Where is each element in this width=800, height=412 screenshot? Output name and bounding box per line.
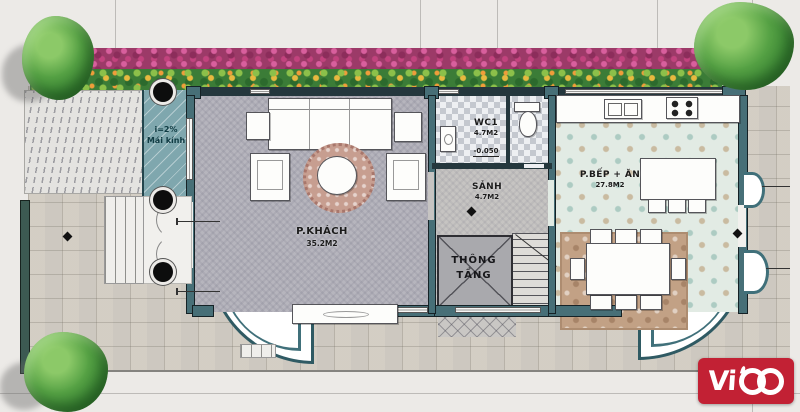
leader-line bbox=[762, 186, 790, 187]
kitchen-area: 27.8M2 bbox=[570, 181, 650, 190]
sofa-divider bbox=[349, 99, 350, 149]
dining-chair bbox=[570, 258, 585, 280]
driveway-ramp bbox=[24, 90, 144, 194]
dining-chair bbox=[671, 258, 686, 280]
kitchen-name: P.BẾP + ĂN bbox=[570, 170, 650, 181]
axis-gridline bbox=[497, 0, 498, 50]
hall-name: SẢNH bbox=[458, 182, 516, 193]
column bbox=[153, 82, 173, 102]
side-table bbox=[394, 112, 422, 142]
stove bbox=[666, 97, 698, 119]
dining-table bbox=[586, 243, 670, 295]
top-window-living bbox=[250, 89, 270, 94]
dining-chair bbox=[590, 229, 612, 244]
left-window bbox=[186, 118, 193, 180]
yard-edge-line bbox=[28, 370, 790, 372]
living-room-label: P.KHÁCH 35.2M2 bbox=[272, 226, 372, 248]
sofa-divider bbox=[309, 99, 310, 149]
glass-roof-name: Mái kính bbox=[140, 135, 192, 146]
column bbox=[153, 190, 173, 210]
tree bbox=[22, 16, 94, 100]
island-stool bbox=[668, 199, 686, 213]
bay-step bbox=[240, 344, 276, 358]
axis-gridline bbox=[115, 0, 116, 50]
kitchen-counter bbox=[556, 95, 740, 123]
toilet-bowl bbox=[519, 111, 537, 137]
dining-chair bbox=[590, 295, 612, 310]
side-table bbox=[246, 112, 270, 140]
living-hall-opening bbox=[428, 172, 434, 220]
living-room-area: 35.2M2 bbox=[272, 239, 372, 248]
sink-basin bbox=[444, 134, 453, 145]
flower-bed-top bbox=[30, 48, 722, 71]
void-label-line2: TẦNG bbox=[437, 268, 511, 283]
top-window-kitchen bbox=[565, 89, 723, 94]
axis-gridline bbox=[420, 0, 421, 50]
axis-gridline bbox=[657, 0, 658, 50]
kitchen-island bbox=[640, 158, 716, 200]
tree bbox=[24, 332, 108, 412]
logo-text: Vi bbox=[707, 366, 737, 397]
kitchen-label: P.BẾP + ĂN 27.8M2 bbox=[570, 170, 650, 190]
bottom-wall-segment bbox=[192, 305, 214, 317]
kitchen-sink bbox=[604, 99, 642, 119]
dimension-tick bbox=[176, 218, 178, 225]
leader-line bbox=[766, 268, 790, 269]
wc-level: -0.050 bbox=[473, 147, 498, 157]
armchair-seat bbox=[257, 160, 283, 190]
left-boundary-wall bbox=[20, 200, 30, 374]
island-stool bbox=[648, 199, 666, 213]
hall-area: 4.7M2 bbox=[458, 193, 516, 202]
void-label: THÔNG TẦNG bbox=[437, 253, 511, 283]
dimension-line bbox=[176, 221, 220, 222]
armchair bbox=[250, 153, 290, 201]
glass-roof-slope: i=2% bbox=[140, 124, 192, 135]
hall-label: SẢNH 4.7M2 bbox=[458, 182, 516, 202]
top-window-wc bbox=[437, 89, 459, 94]
living-room-name: P.KHÁCH bbox=[272, 226, 372, 239]
sofa-back-line bbox=[269, 109, 391, 110]
vico-logo: Vi bbox=[698, 358, 794, 404]
dining-chair bbox=[640, 229, 662, 244]
console-detail bbox=[323, 311, 369, 318]
void-label-line1: THÔNG bbox=[437, 253, 511, 268]
hall-kitchen-opening bbox=[548, 180, 554, 226]
sink-bowl-right bbox=[624, 103, 638, 116]
wc-sink bbox=[440, 126, 456, 152]
dining-chair bbox=[615, 229, 637, 244]
column bbox=[153, 262, 173, 282]
dimension-line bbox=[176, 291, 220, 292]
glass-roof-label: i=2% Mái kính bbox=[140, 124, 192, 146]
bottom-window bbox=[455, 307, 541, 313]
wc-door-gap bbox=[524, 164, 544, 168]
coffee-table bbox=[317, 156, 357, 195]
island-stool bbox=[688, 199, 706, 213]
wc-name: WC1 bbox=[460, 118, 512, 129]
entry-steps bbox=[104, 196, 144, 284]
wc-area: 4.7M2 bbox=[460, 129, 512, 138]
sofa bbox=[268, 98, 392, 150]
sink-bowl-left bbox=[608, 103, 622, 116]
dining-chair bbox=[640, 295, 662, 310]
tv-console bbox=[292, 304, 398, 324]
tree bbox=[694, 2, 794, 90]
armchair bbox=[386, 153, 426, 201]
floor-plan-canvas: i=2% Mái kính THÔNG TẦNG bbox=[0, 0, 800, 412]
wc-label: WC1 4.7M2 -0.050 bbox=[460, 118, 512, 158]
armchair-seat bbox=[393, 160, 419, 190]
dimension-tick bbox=[176, 288, 178, 295]
logo-co-ring-icon bbox=[757, 368, 784, 395]
right-door-gap bbox=[738, 205, 746, 247]
property-line bbox=[0, 393, 800, 394]
dining-chair bbox=[615, 295, 637, 310]
